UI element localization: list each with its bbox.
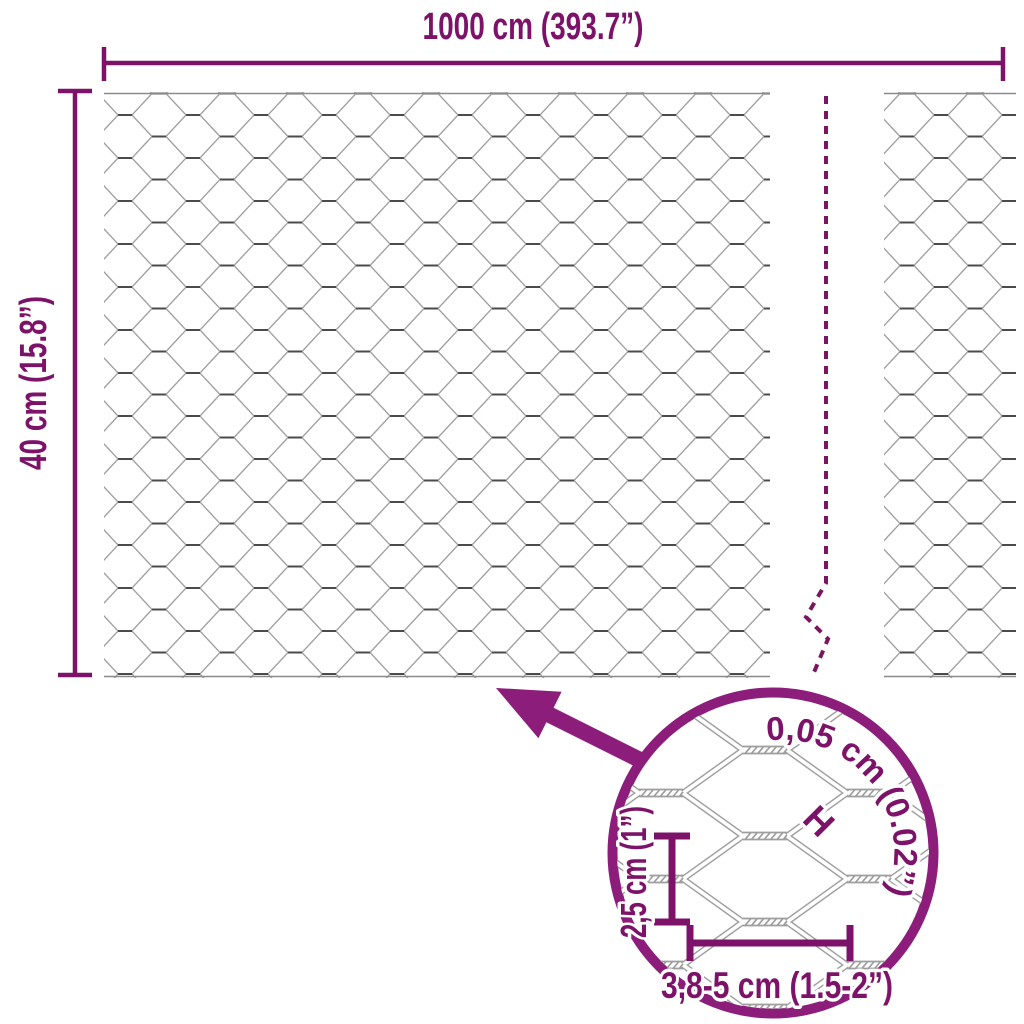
mesh-main-surface bbox=[104, 92, 770, 678]
mesh-panel-main bbox=[104, 92, 770, 678]
left-dimension-line bbox=[58, 91, 92, 675]
top-dimension-line bbox=[104, 47, 1003, 81]
cell-height-label: 2,5 cm (1”) bbox=[613, 806, 654, 938]
cell-width-label: 3,8-5 cm (1.5-2”) bbox=[661, 965, 893, 1006]
cut-dashed-line bbox=[806, 96, 828, 677]
wire-mesh-dimension-diagram: 1000 cm (393.7”) 40 cm (15.8”) 2,5 cm ( bbox=[0, 0, 1024, 1024]
mesh-right-surface bbox=[884, 92, 1016, 678]
mesh-panel-right bbox=[884, 92, 1016, 678]
detail-magnifier-circle: 2,5 cm (1”) 3,8-5 cm (1.5-2”) 0,05 cm (0… bbox=[610, 690, 940, 1020]
total-width-label: 1000 cm (393.7”) bbox=[423, 6, 644, 48]
total-height-label: 40 cm (15.8”) bbox=[13, 296, 55, 470]
zoom-arrow-icon bbox=[496, 688, 644, 767]
